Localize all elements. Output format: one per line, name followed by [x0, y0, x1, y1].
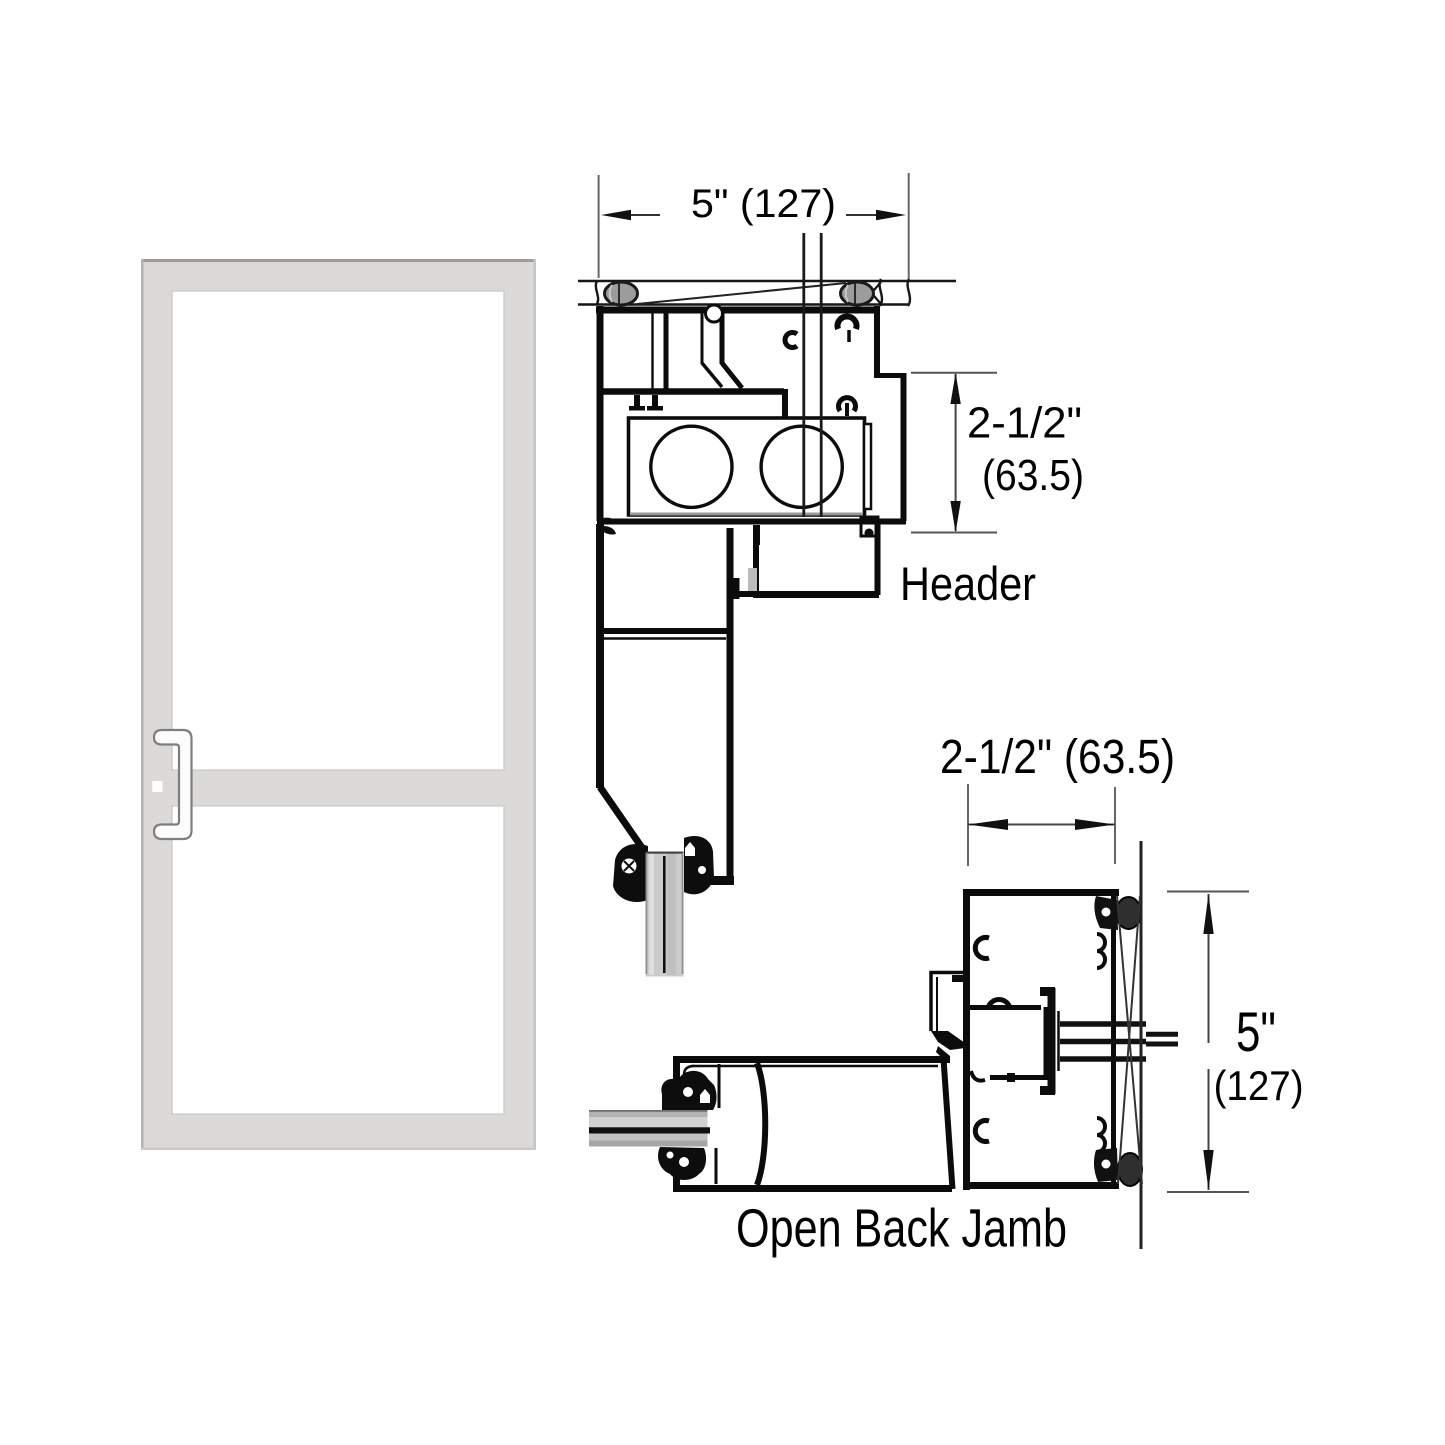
- svg-text:2-1/2" (63.5): 2-1/2" (63.5): [940, 731, 1175, 784]
- svg-text:(127): (127): [1214, 1062, 1304, 1109]
- svg-text:5": 5": [1236, 1000, 1276, 1063]
- svg-text:Header: Header: [900, 557, 1036, 610]
- svg-text:(63.5): (63.5): [982, 451, 1084, 500]
- svg-text:2-1/2": 2-1/2": [967, 399, 1082, 447]
- svg-text:Open Back Jamb: Open Back Jamb: [736, 1199, 1067, 1259]
- svg-text:5" (127): 5" (127): [691, 182, 836, 226]
